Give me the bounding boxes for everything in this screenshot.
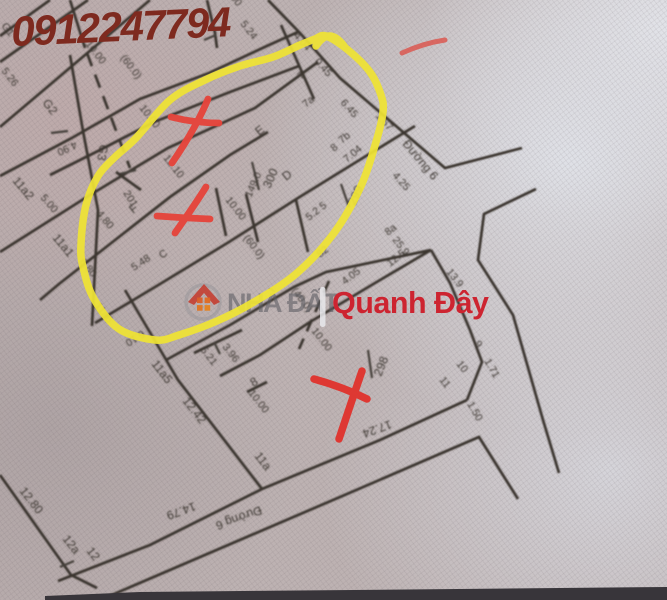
- svg-text:1.71: 1.71: [481, 357, 502, 381]
- svg-text:1.50: 1.50: [464, 400, 485, 424]
- svg-text:11a1: 11a1: [50, 231, 78, 260]
- svg-text:11: 11: [437, 374, 453, 390]
- svg-text:10.00: 10.00: [246, 387, 272, 415]
- svg-text:5.24: 5.24: [238, 18, 260, 42]
- svg-text:298: 298: [371, 354, 392, 378]
- svg-text:(60.0): (60.0): [118, 52, 144, 81]
- svg-text:12.80: 12.80: [17, 484, 47, 517]
- svg-text:12.42: 12.42: [180, 394, 210, 427]
- svg-text:8: 8: [328, 141, 340, 154]
- svg-text:(60.0): (60.0): [241, 232, 267, 261]
- svg-text:5.00: 5.00: [38, 192, 61, 215]
- svg-text:11a2: 11a2: [10, 174, 38, 203]
- svg-text:5.48: 5.48: [129, 252, 153, 273]
- svg-text:7b: 7b: [336, 129, 353, 146]
- svg-text:7.04: 7.04: [341, 143, 364, 165]
- svg-text:12: 12: [84, 544, 103, 563]
- svg-text:7a: 7a: [300, 93, 317, 110]
- svg-text:5.2 5: 5.2 5: [303, 199, 329, 223]
- svg-text:D: D: [279, 167, 295, 184]
- svg-text:10.00: 10.00: [223, 194, 249, 222]
- svg-text:0912247794: 0912247794: [10, 0, 232, 55]
- svg-text:5.26: 5.26: [0, 65, 21, 89]
- svg-text:G2: G2: [40, 96, 61, 117]
- svg-text:Đường 6: Đường 6: [214, 503, 264, 533]
- svg-text:E: E: [252, 122, 267, 138]
- svg-text:6.45: 6.45: [338, 97, 361, 120]
- svg-text:3.96: 3.96: [220, 341, 242, 365]
- svg-text:Quanh Đây: Quanh Đây: [332, 286, 489, 320]
- svg-text:10.00: 10.00: [309, 325, 335, 353]
- svg-text:0.45: 0.45: [312, 56, 335, 79]
- svg-text:14.79: 14.79: [164, 499, 197, 523]
- svg-text:10: 10: [454, 358, 471, 375]
- svg-text:11a: 11a: [252, 449, 275, 473]
- svg-text:11a5: 11a5: [149, 357, 176, 386]
- svg-text:12a: 12a: [60, 532, 84, 557]
- svg-text:C: C: [157, 247, 171, 261]
- svg-text:4.25: 4.25: [390, 170, 413, 193]
